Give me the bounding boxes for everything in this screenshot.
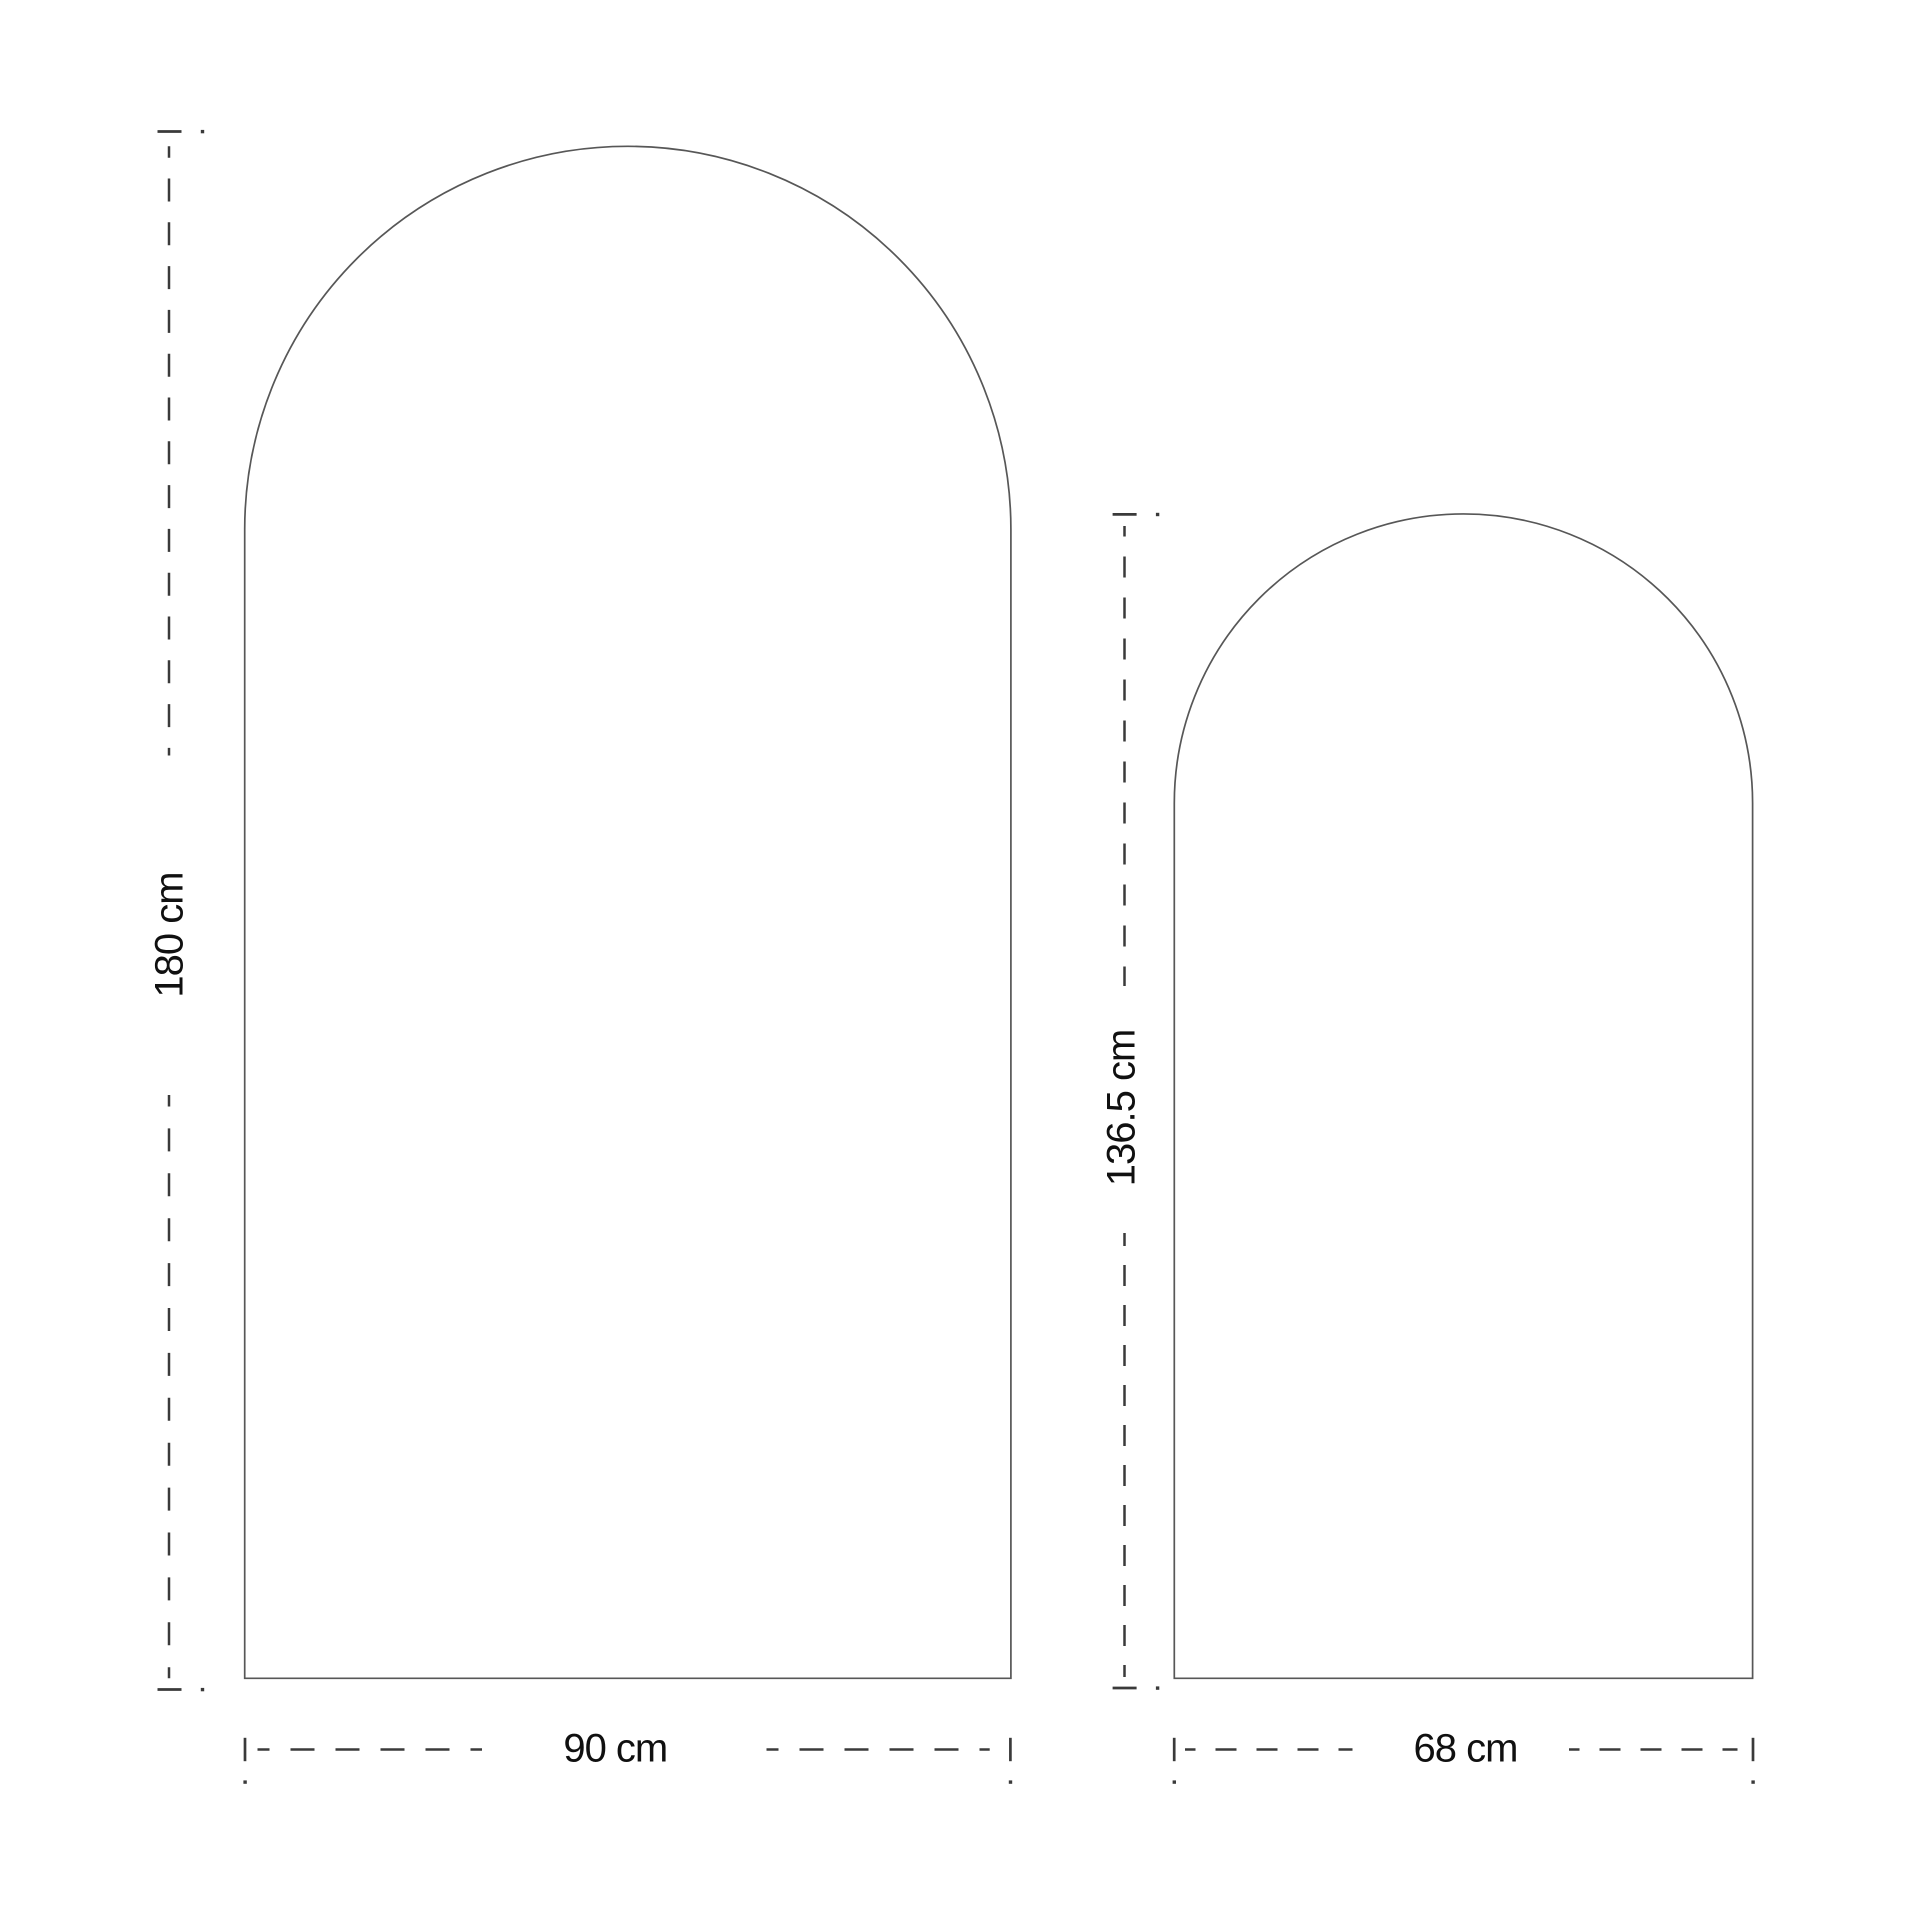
svg-text:68 cm: 68 cm [1414, 1727, 1518, 1771]
svg-text:90 cm: 90 cm [563, 1727, 667, 1771]
svg-text:180 cm: 180 cm [148, 872, 192, 997]
svg-text:136.5 cm: 136.5 cm [1100, 1030, 1144, 1187]
